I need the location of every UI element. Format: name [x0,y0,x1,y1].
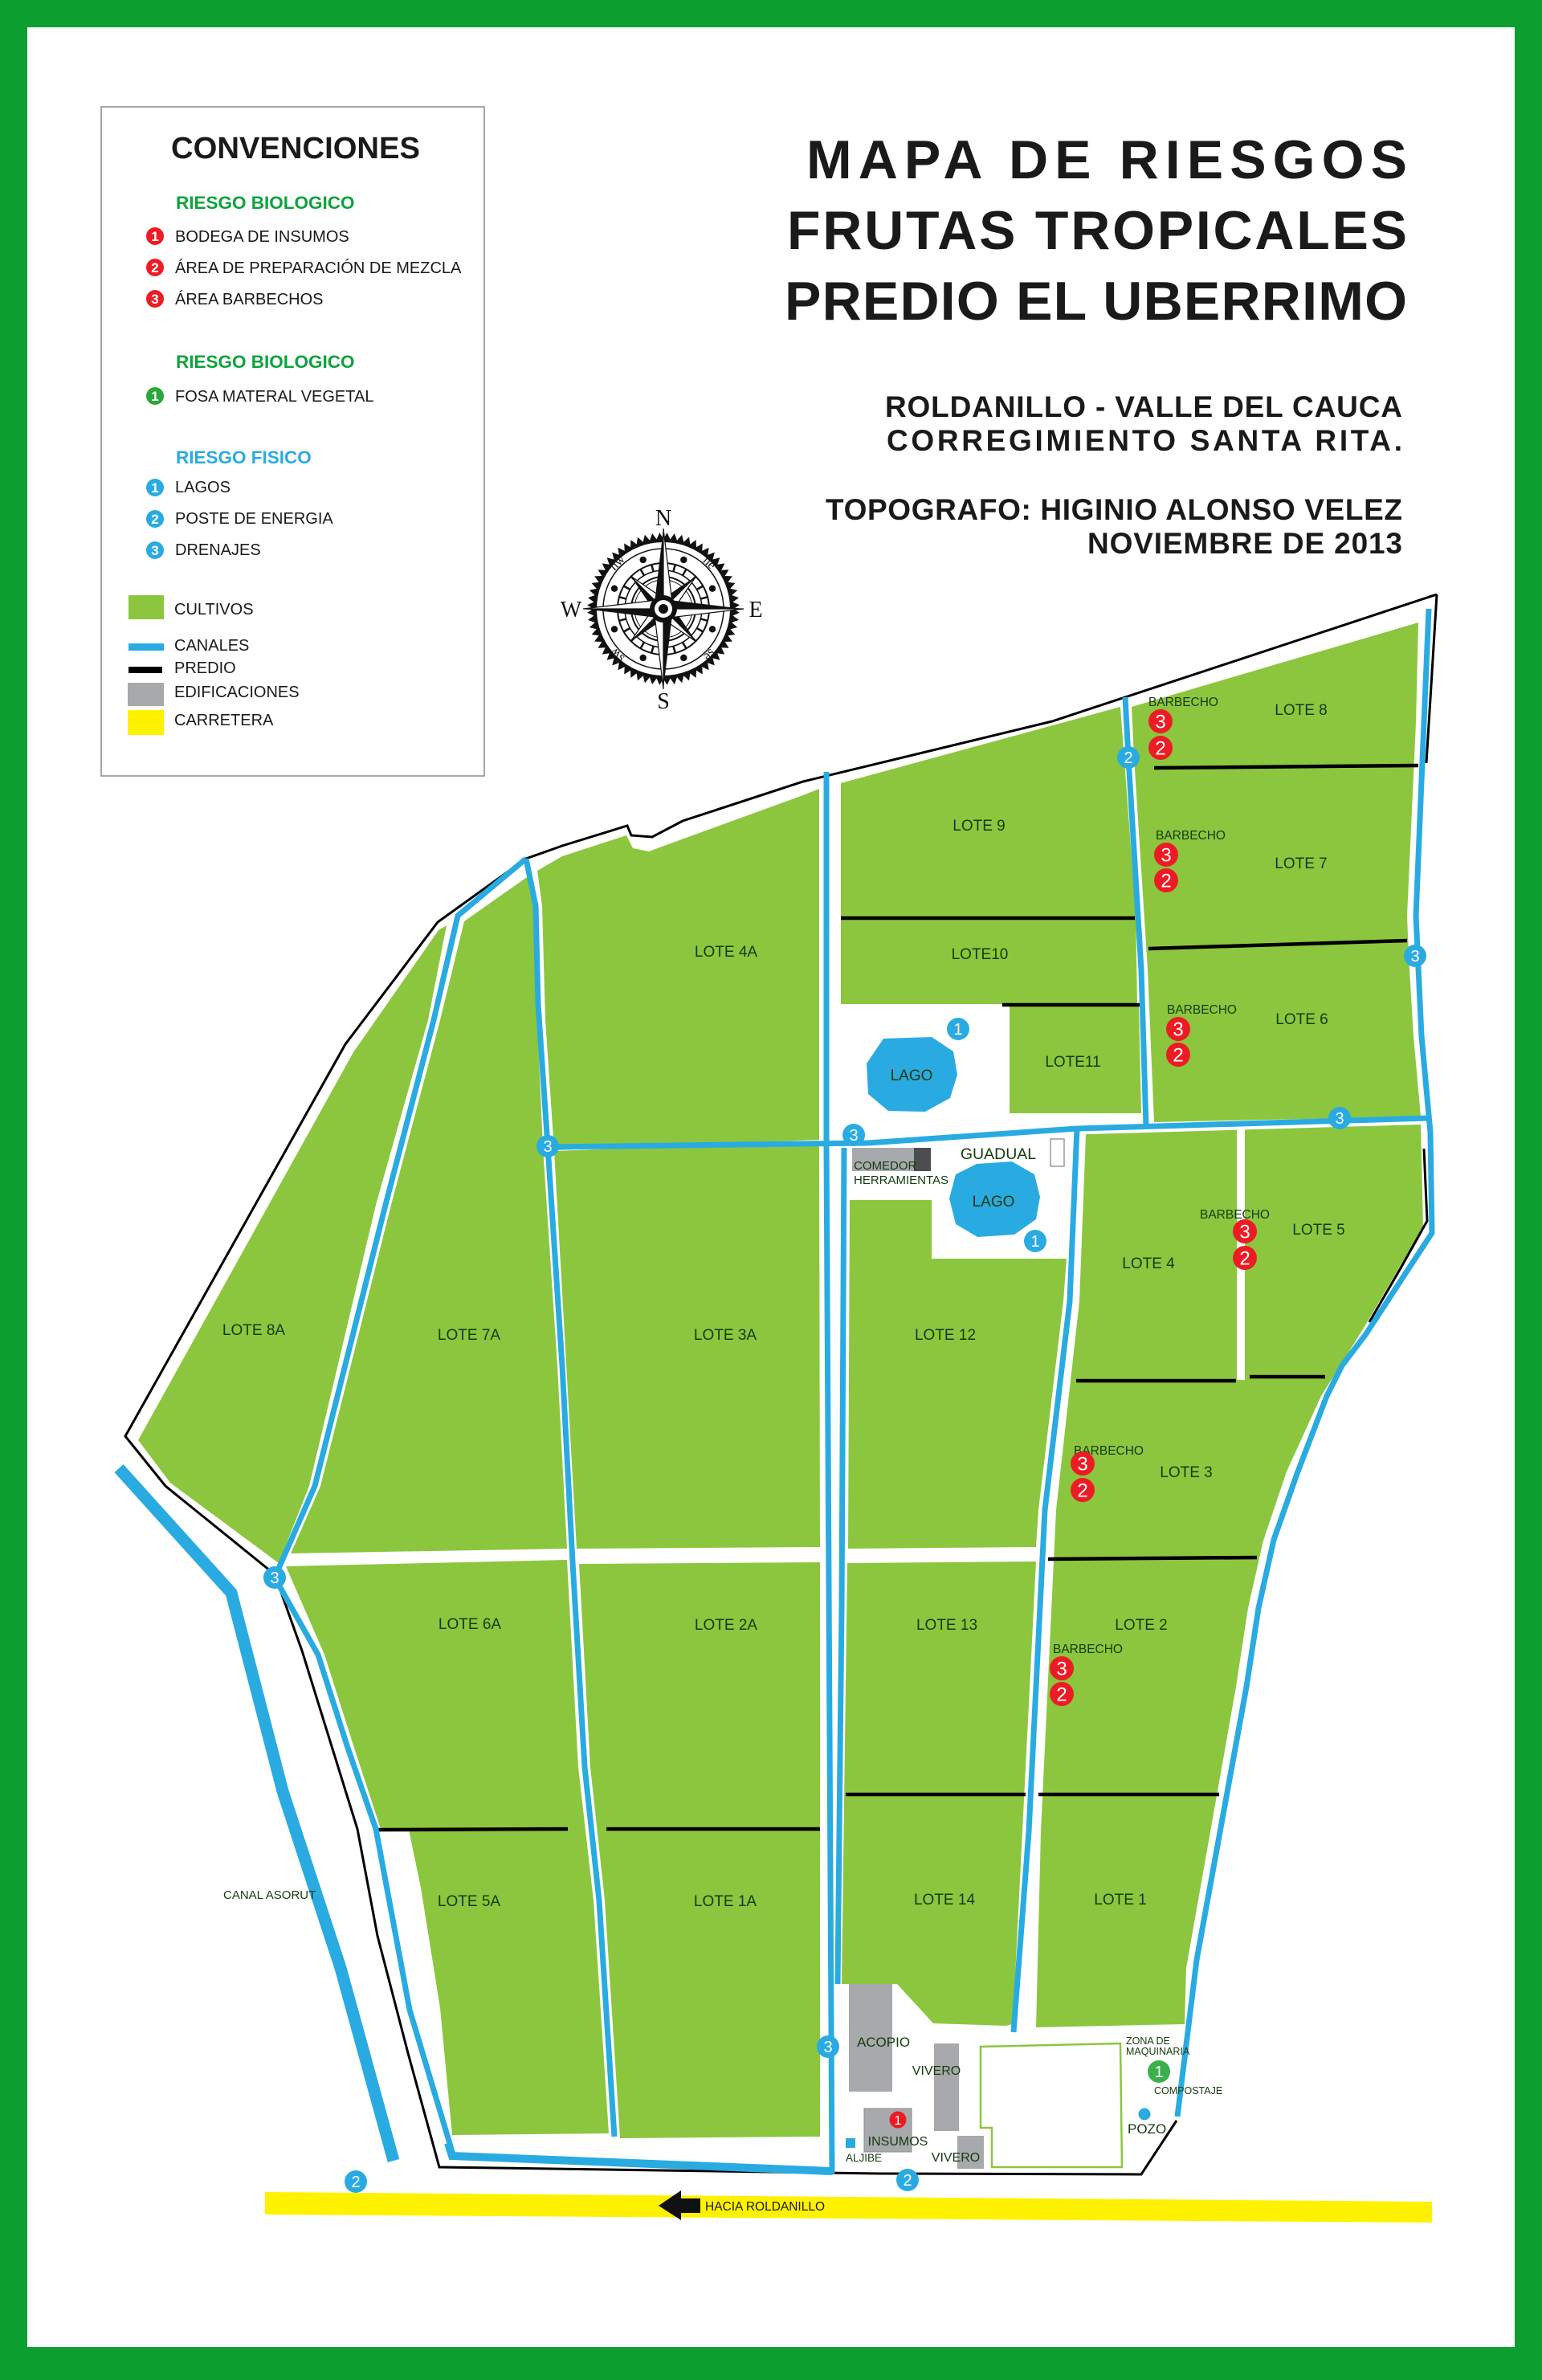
svg-text:3: 3 [1155,712,1165,733]
svg-text:TOPOGRAFO: HIGINIO ALONSO VELE: TOPOGRAFO: HIGINIO ALONSO VELEZ [826,493,1402,526]
svg-text:ACOPIO: ACOPIO [857,2035,910,2050]
svg-text:RIESGO BIOLOGICO: RIESGO BIOLOGICO [176,352,355,372]
svg-text:2: 2 [1239,1248,1250,1270]
svg-text:2: 2 [1173,1045,1183,1067]
svg-text:3: 3 [1239,1222,1250,1243]
svg-text:1: 1 [1154,2064,1163,2081]
svg-text:GUADUAL: GUADUAL [961,1145,1036,1163]
svg-text:3: 3 [543,1138,552,1156]
svg-text:LOTE 5: LOTE 5 [1292,1222,1344,1239]
svg-text:LAGOS: LAGOS [175,479,230,496]
svg-text:CARRETERA: CARRETERA [174,712,274,729]
svg-text:BARBECHO: BARBECHO [1148,696,1218,709]
svg-text:LAGO: LAGO [891,1068,933,1084]
svg-text:3: 3 [823,2039,832,2056]
svg-text:BARBECHO: BARBECHO [1167,1003,1237,1017]
svg-text:LOTE 4: LOTE 4 [1122,1255,1175,1272]
svg-text:PREDIO: PREDIO [174,659,236,677]
svg-text:2: 2 [1124,749,1132,767]
svg-text:INSUMOS: INSUMOS [868,2135,928,2149]
svg-text:LOTE 1A: LOTE 1A [694,1893,757,1910]
svg-text:POSTE DE ENERGIA: POSTE DE ENERGIA [175,510,333,528]
svg-text:1: 1 [151,480,158,496]
svg-text:LOTE 4A: LOTE 4A [695,944,757,961]
svg-text:MAQUINARIA: MAQUINARIA [1126,2046,1190,2057]
svg-text:2: 2 [151,260,158,276]
svg-text:LOTE 9: LOTE 9 [953,818,1005,835]
svg-text:N: N [655,506,671,531]
svg-text:3: 3 [1077,1454,1087,1476]
svg-text:FOSA MATERAL VEGETAL: FOSA MATERAL VEGETAL [175,388,373,406]
svg-text:2: 2 [351,2174,360,2191]
svg-text:FRUTAS TROPICALES: FRUTAS TROPICALES [787,200,1407,261]
svg-text:BARBECHO: BARBECHO [1053,1643,1123,1656]
svg-text:E: E [749,598,762,623]
svg-text:LOTE 12: LOTE 12 [915,1327,976,1344]
svg-text:BARBECHO: BARBECHO [1156,829,1226,843]
svg-text:LOTE 3A: LOTE 3A [694,1327,757,1344]
svg-text:POZO: POZO [1128,2121,1166,2137]
svg-text:HERRAMIENTAS: HERRAMIENTAS [854,1174,948,1187]
svg-text:DRENAJES: DRENAJES [175,541,261,559]
svg-text:1: 1 [895,2114,902,2128]
svg-text:3: 3 [151,292,158,307]
svg-text:EDIFICACIONES: EDIFICACIONES [174,684,300,701]
svg-text:1: 1 [1030,1233,1039,1251]
svg-text:2: 2 [1056,1684,1067,1706]
svg-text:RIESGO FISICO: RIESGO FISICO [176,447,312,467]
svg-text:COMPOSTAJE: COMPOSTAJE [1154,2085,1222,2096]
svg-text:LOTE 2: LOTE 2 [1115,1617,1167,1634]
svg-text:NOVIEMBRE DE 2013: NOVIEMBRE DE 2013 [1087,527,1402,560]
svg-text:CANALES: CANALES [174,637,249,655]
svg-text:LOTE 2A: LOTE 2A [695,1617,757,1634]
svg-text:W: W [561,598,582,623]
svg-text:3: 3 [1410,948,1419,965]
svg-text:LOTE 7: LOTE 7 [1275,855,1327,872]
svg-text:BODEGA DE INSUMOS: BODEGA DE INSUMOS [175,228,349,246]
svg-text:LOTE 5A: LOTE 5A [438,1893,500,1910]
svg-text:1: 1 [953,1021,962,1039]
svg-text:CANAL ASORUT: CANAL ASORUT [223,1888,316,1902]
svg-text:LOTE 6: LOTE 6 [1275,1011,1328,1028]
svg-text:3: 3 [151,543,158,558]
svg-text:ÁREA DE PREPARACIÓN DE MEZCLA: ÁREA DE PREPARACIÓN DE MEZCLA [175,259,462,277]
svg-text:CULTIVOS: CULTIVOS [174,601,254,618]
svg-text:ZONA DE: ZONA DE [1126,2035,1170,2047]
svg-text:ROLDANILLO - VALLE DEL CAUCA: ROLDANILLO - VALLE DEL CAUCA [885,390,1402,423]
svg-text:S: S [657,689,670,714]
svg-text:1: 1 [151,229,158,244]
svg-text:LOTE10: LOTE10 [952,946,1009,963]
svg-text:3: 3 [1056,1659,1067,1680]
svg-text:LOTE 14: LOTE 14 [914,1892,975,1908]
svg-text:LOTE 13: LOTE 13 [916,1617,977,1634]
svg-text:LOTE 3: LOTE 3 [1160,1464,1212,1481]
svg-text:HACIA ROLDANILLO: HACIA ROLDANILLO [705,2200,825,2214]
svg-text:LOTE 7A: LOTE 7A [438,1327,500,1344]
svg-text:PREDIO EL UBERRIMO: PREDIO EL UBERRIMO [785,271,1407,332]
svg-text:LOTE 6A: LOTE 6A [439,1616,501,1633]
svg-text:3: 3 [270,1570,279,1587]
svg-text:LOTE 8A: LOTE 8A [222,1322,285,1339]
svg-text:COMEDOR: COMEDOR [854,1159,917,1173]
svg-text:LOTE 1: LOTE 1 [1094,1892,1146,1908]
svg-text:ÁREA BARBECHOS: ÁREA BARBECHOS [175,290,324,308]
svg-text:3: 3 [1161,845,1171,867]
svg-text:2: 2 [1077,1480,1087,1502]
svg-text:CONVENCIONES: CONVENCIONES [171,132,420,165]
svg-text:1: 1 [151,389,158,404]
svg-text:3: 3 [849,1127,858,1145]
svg-text:VIVERO: VIVERO [932,2151,980,2165]
svg-text:3: 3 [1173,1019,1183,1041]
svg-text:LAGO: LAGO [973,1194,1015,1210]
svg-text:ALJIBE: ALJIBE [846,2152,882,2164]
svg-text:2: 2 [151,512,158,527]
svg-text:CORREGIMIENTO SANTA RITA.: CORREGIMIENTO SANTA RITA. [887,424,1402,457]
svg-text:3: 3 [1335,1110,1344,1128]
svg-text:VIVERO: VIVERO [912,2064,961,2078]
svg-text:RIESGO BIOLOGICO: RIESGO BIOLOGICO [176,193,355,213]
svg-text:LOTE 8: LOTE 8 [1275,702,1327,719]
svg-text:2: 2 [903,2172,912,2190]
svg-text:BARBECHO: BARBECHO [1200,1208,1270,1222]
svg-text:2: 2 [1155,738,1165,760]
svg-text:2: 2 [1161,871,1171,892]
svg-text:LOTE11: LOTE11 [1045,1054,1100,1071]
